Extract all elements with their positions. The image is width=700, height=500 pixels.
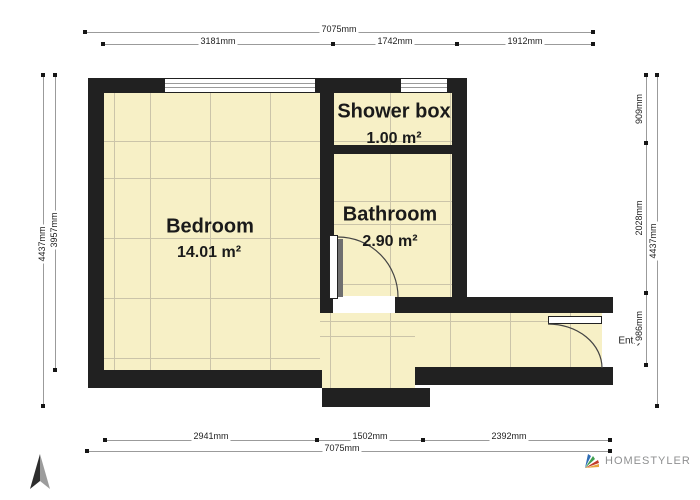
dim-bottom-segment-2: 1502mm — [350, 431, 389, 441]
wall-hallway-bottom — [415, 367, 613, 385]
alcove-floor — [320, 313, 415, 388]
wall-left — [88, 78, 104, 387]
bathroom-label: Bathroom — [343, 204, 437, 227]
bathroom-door-opening — [333, 296, 395, 313]
dim-tick — [655, 73, 659, 77]
dim-tick — [608, 438, 612, 442]
dim-tick — [655, 404, 659, 408]
dim-tick — [103, 438, 107, 442]
dim-tick — [53, 368, 57, 372]
homestyler-fan-icon — [583, 452, 601, 470]
dim-tick — [591, 30, 595, 34]
dim-tick — [421, 438, 425, 442]
dim-tick — [644, 363, 648, 367]
dim-right-segment-3: 986mm — [634, 309, 644, 343]
dim-right-outer: 4437mm — [648, 221, 658, 260]
dim-bottom-total: 7075mm — [322, 443, 361, 453]
dim-tick — [101, 42, 105, 46]
bedroom-label: Bedroom — [166, 216, 254, 239]
bathroom-area: 2.90 m² — [362, 233, 417, 251]
shower-area: 1.00 m² — [366, 130, 421, 148]
bathroom-door-shadow — [338, 239, 343, 297]
dim-tick — [644, 73, 648, 77]
dim-tick — [315, 438, 319, 442]
dim-bottom-segment-3: 2392mm — [489, 431, 528, 441]
shower-label: Shower box — [337, 101, 450, 124]
floorplan-canvas: Bedroom 14.01 m² Shower box 1.00 m² Bath… — [0, 0, 700, 500]
wall-bedroom-bottom — [88, 370, 322, 388]
dim-top-segment-3: 1912mm — [505, 36, 544, 46]
dim-tick — [591, 42, 595, 46]
dim-tick — [644, 291, 648, 295]
dim-left-inner: 3957mm — [49, 210, 59, 249]
dim-tick — [41, 73, 45, 77]
dim-top-segment-2: 1742mm — [375, 36, 414, 46]
dim-left-outer: 4437mm — [37, 224, 47, 263]
dim-tick — [85, 449, 89, 453]
homestyler-wordmark: HOMESTYLER — [605, 455, 691, 467]
dim-tick — [331, 42, 335, 46]
dim-bottom-segment-1: 2941mm — [191, 431, 230, 441]
shower-window — [401, 79, 447, 92]
dim-line-right-segments — [646, 75, 647, 365]
wall-bottom-bump — [322, 388, 430, 407]
bedroom-window — [165, 79, 315, 92]
dim-right-segment-1: 909mm — [634, 92, 644, 126]
dim-right-segment-2: 2028mm — [634, 198, 644, 237]
dim-top-total: 7075mm — [319, 24, 358, 34]
wall-right-upper — [452, 78, 467, 313]
dim-tick — [41, 404, 45, 408]
bathroom-door-panel — [329, 235, 338, 299]
dim-top-segment-1: 3181mm — [198, 36, 237, 46]
dim-tick — [644, 141, 648, 145]
dim-tick — [83, 30, 87, 34]
bedroom-area: 14.01 m² — [177, 244, 241, 262]
homestyler-logo: HOMESTYLER — [583, 452, 691, 470]
dim-tick — [455, 42, 459, 46]
entry-door-panel — [548, 316, 602, 324]
dim-tick — [53, 73, 57, 77]
north-compass-icon — [27, 452, 53, 492]
wall-hallway-top — [395, 297, 613, 313]
